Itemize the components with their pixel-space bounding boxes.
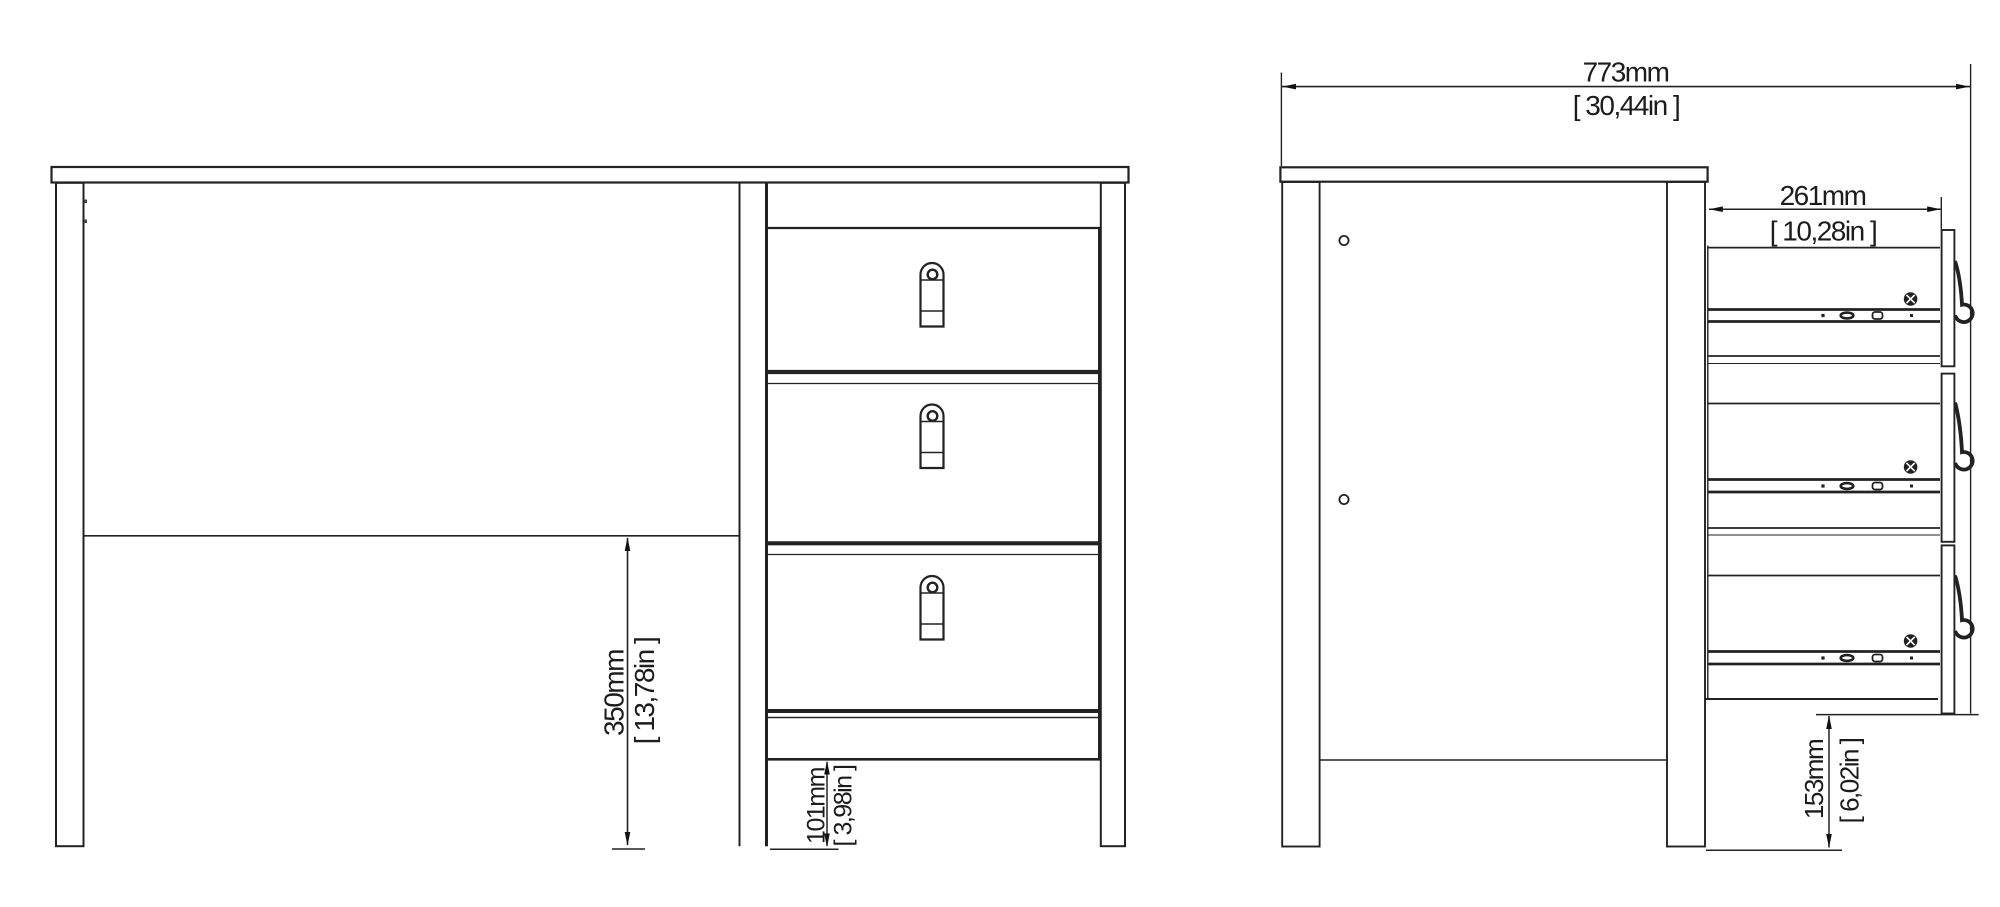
svg-text:350mm: 350mm (599, 650, 630, 736)
svg-text:261mm: 261mm (1780, 180, 1866, 211)
svg-text:[ 10,28in ]: [ 10,28in ] (1770, 216, 1876, 247)
svg-text:[ 30,44in ]: [ 30,44in ] (1573, 90, 1679, 121)
svg-text:[ 13,78in ]: [ 13,78in ] (629, 638, 660, 744)
svg-text:[ 3,98in ]: [ 3,98in ] (830, 765, 858, 846)
svg-text:773mm: 773mm (1583, 57, 1669, 88)
svg-text:153mm: 153mm (1799, 740, 1829, 819)
svg-text:[ 6,02in ]: [ 6,02in ] (1835, 738, 1865, 823)
svg-text:101mm: 101mm (803, 767, 831, 844)
